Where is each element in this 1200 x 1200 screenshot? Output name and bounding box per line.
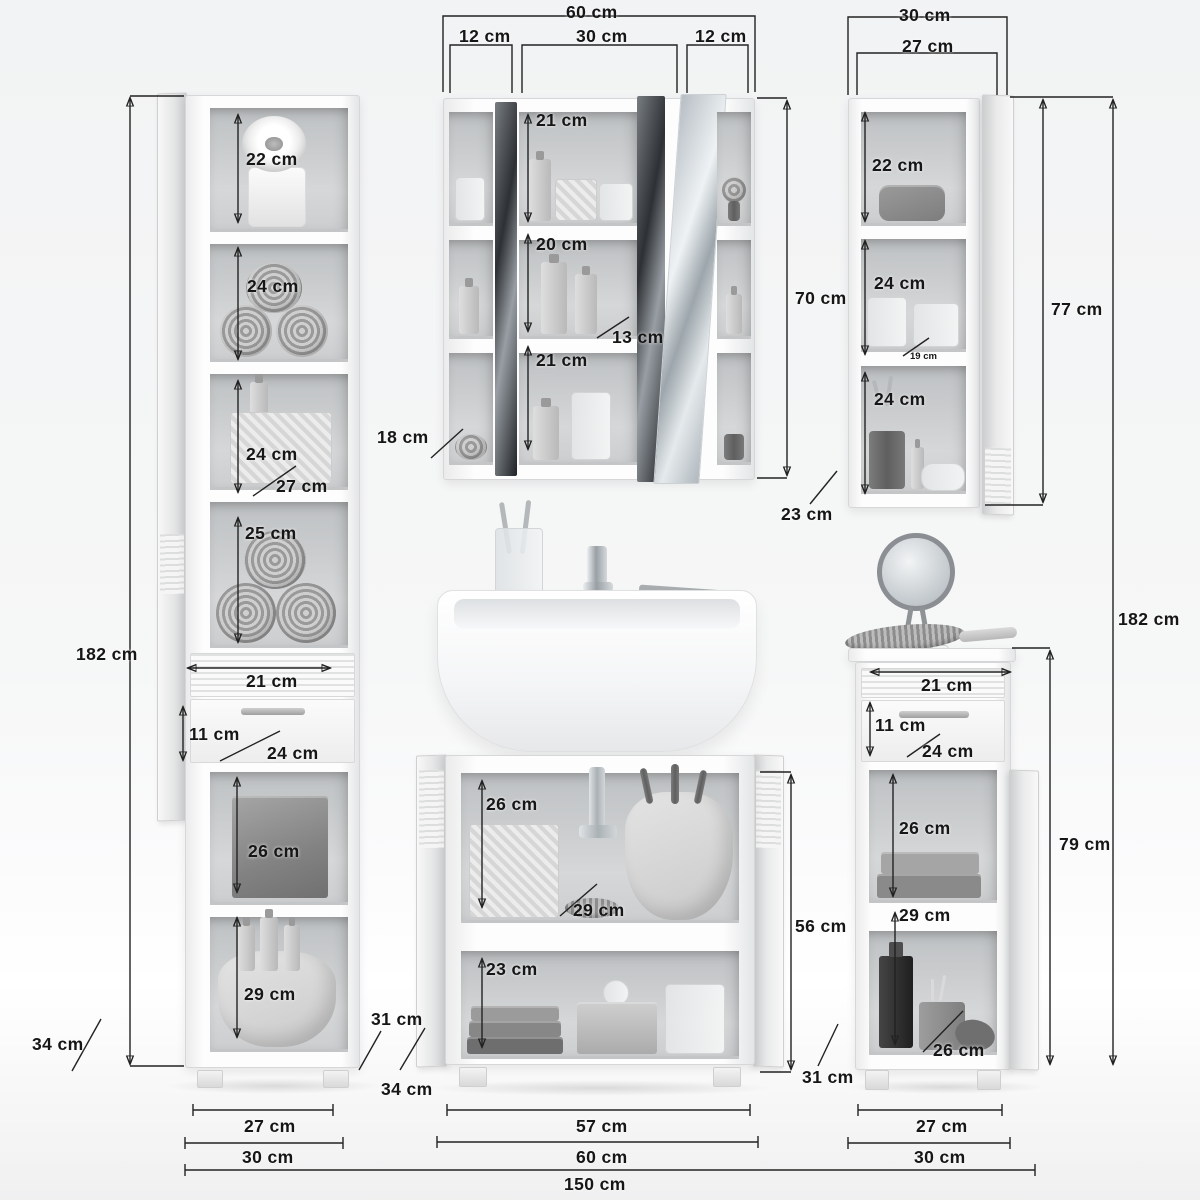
dim-overall-width: 150 cm [564, 1174, 626, 1195]
dim-mirror-depth: 18 cm [377, 427, 429, 448]
dim-side-depth: 31 cm [802, 1067, 854, 1088]
dim-tall-shelf3: 24 cm [246, 444, 298, 465]
dim-side-height: 79 cm [1059, 834, 1111, 855]
dim-vanity-shelf1-depth: 29 cm [573, 900, 625, 921]
dim-tall-drawer-depth: 24 cm [267, 743, 319, 764]
dim-tall-shelf1: 22 cm [246, 149, 298, 170]
dim-overall-height-left: 182 cm [76, 644, 138, 665]
dim-tall-shelf6: 29 cm [244, 984, 296, 1005]
dim-tall-shelf5: 26 cm [248, 841, 300, 862]
dim-wall-shelf3: 24 cm [874, 389, 926, 410]
dim-side-shelf2: 29 cm [899, 905, 951, 926]
dim-side-drawer-width: 21 cm [921, 675, 973, 696]
dim-side-drawer-height: 11 cm [875, 715, 926, 736]
furniture-dimension-diagram: 60 cm 12 cm 30 cm 12 cm 21 cm 20 cm 13 c… [0, 0, 1200, 1200]
dim-mirror-shelf-top: 21 cm [536, 110, 588, 131]
height-arrows [130, 98, 1113, 1069]
dim-wall-height: 77 cm [1051, 299, 1103, 320]
dim-vanity-depth: 34 cm [381, 1079, 433, 1100]
dim-vanity-shelf2: 23 cm [486, 959, 538, 980]
dim-overall-height-right: 182 cm [1118, 609, 1180, 630]
dim-vanity-height: 56 cm [795, 916, 847, 937]
dim-tall-shelf3-depth: 27 cm [276, 476, 328, 497]
dim-tall-drawer-width: 21 cm [246, 671, 298, 692]
dim-tall-drawer-height: 11 cm [189, 724, 240, 745]
dim-tall-width: 30 cm [242, 1147, 294, 1168]
dim-wall-shelf2-depth: 19 cm [910, 351, 937, 362]
dim-mirror-height: 70 cm [795, 288, 847, 309]
dim-tall-shelf4: 25 cm [245, 523, 297, 544]
dim-side-shelf2-depth: 26 cm [933, 1040, 985, 1061]
dim-mirror-center-section: 30 cm [576, 26, 628, 47]
dim-mirror-width: 60 cm [566, 2, 618, 23]
dim-wall-depth: 23 cm [781, 504, 833, 525]
dim-mirror-shelf-depth: 13 cm [612, 327, 664, 348]
dim-side-drawer-depth: 24 cm [922, 741, 974, 762]
depth-slash-lines [72, 317, 963, 1071]
dim-mirror-shelf-bottom: 21 cm [536, 350, 588, 371]
dimension-lines [0, 0, 1200, 1200]
dim-tall-shelf2: 24 cm [247, 276, 299, 297]
dim-wall-inner-width: 27 cm [902, 36, 954, 57]
dim-vanity-width: 60 cm [576, 1147, 628, 1168]
dim-vanity-inner-width: 57 cm [576, 1116, 628, 1137]
dim-mirror-shelf-middle: 20 cm [536, 234, 588, 255]
dim-vanity-shelf1: 26 cm [486, 794, 538, 815]
dim-side-shelf1: 26 cm [899, 818, 951, 839]
dim-tall-base-depth: 34 cm [32, 1034, 84, 1055]
dim-side-inner-width: 27 cm [916, 1116, 968, 1137]
connector-lines [130, 96, 1113, 1072]
dim-wall-shelf2: 24 cm [874, 273, 926, 294]
dim-wall-shelf1: 22 cm [872, 155, 924, 176]
dim-side-width: 30 cm [914, 1147, 966, 1168]
dim-wall-width: 30 cm [899, 5, 951, 26]
dim-tall-body-depth: 31 cm [371, 1009, 423, 1030]
dim-mirror-left-section: 12 cm [459, 26, 511, 47]
dim-mirror-right-section: 12 cm [695, 26, 747, 47]
dim-tall-inner-width: 27 cm [244, 1116, 296, 1137]
